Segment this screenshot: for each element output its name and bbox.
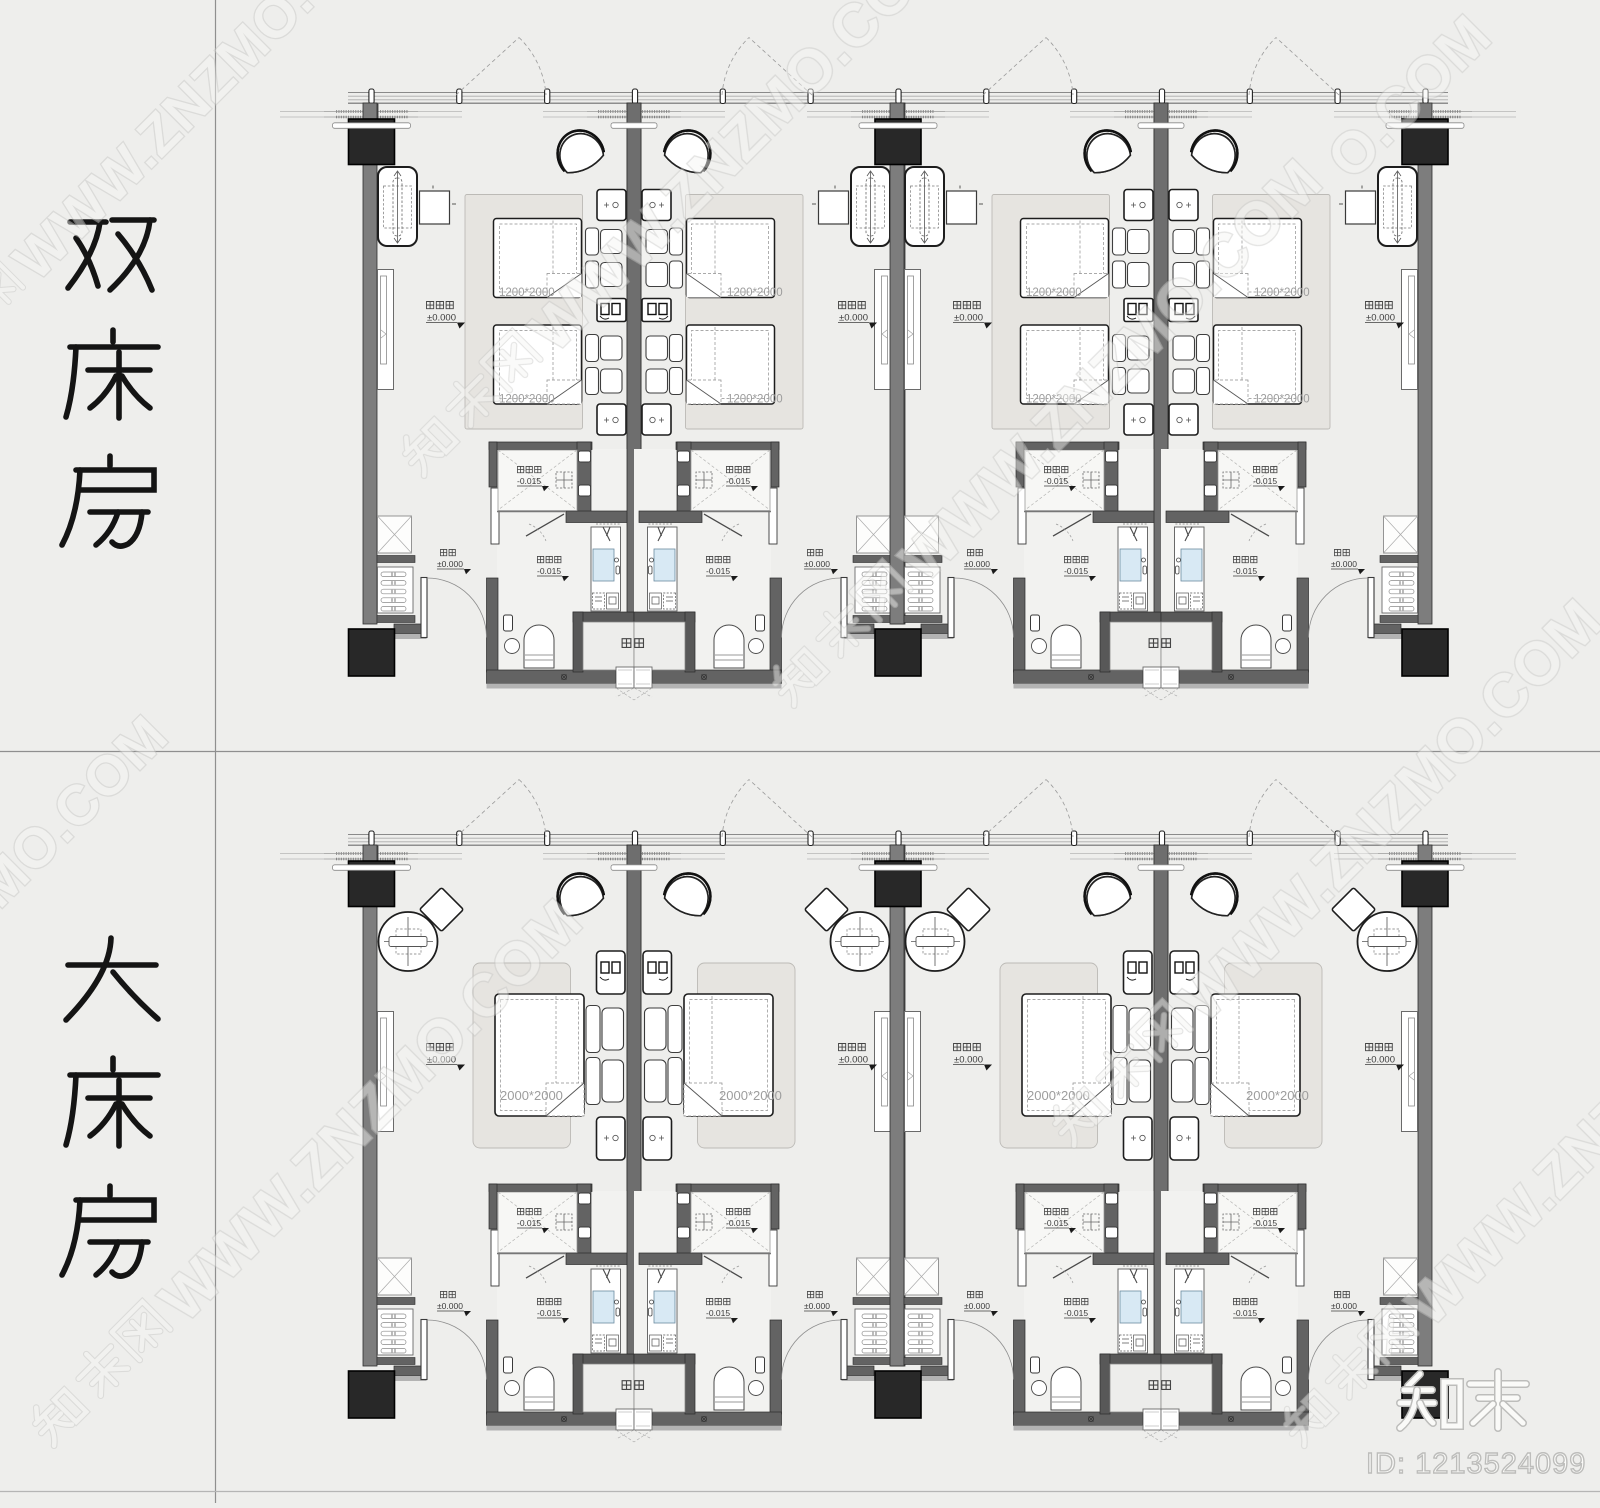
svg-text:1200*2000: 1200*2000 <box>727 394 783 406</box>
svg-text:2000*2000: 2000*2000 <box>1246 1088 1309 1103</box>
svg-text:1200*2000: 1200*2000 <box>1254 287 1310 299</box>
svg-text:2000*2000: 2000*2000 <box>719 1088 782 1103</box>
svg-text:1200*2000: 1200*2000 <box>727 287 783 299</box>
svg-text:1200*2000: 1200*2000 <box>1026 287 1082 299</box>
svg-text:2000*2000: 2000*2000 <box>500 1088 563 1103</box>
svg-text:1200*2000: 1200*2000 <box>499 394 555 406</box>
svg-text:1200*2000: 1200*2000 <box>1254 394 1310 406</box>
svg-text:ID: 1213524099: ID: 1213524099 <box>1366 1448 1586 1480</box>
